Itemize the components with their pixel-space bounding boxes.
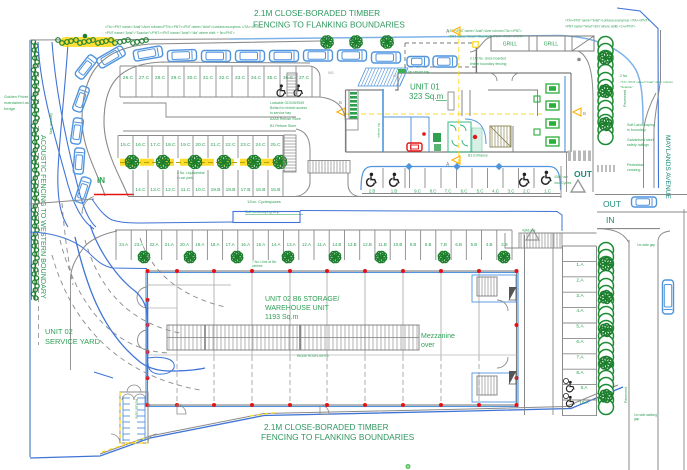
svg-text:20.A: 20.A [180,242,189,247]
svg-text:4no. Cycles: 4no. Cycles [554,181,572,185]
svg-text:20.C: 20.C [195,142,206,148]
svg-text:B1 Entrance: B1 Entrance [468,154,488,158]
svg-text:<TA><PNT name="Arial">Lontana: <TA><PNT name="Arial">Lontana euonymus <… [565,19,650,23]
svg-text:W1: W1 [328,70,335,75]
svg-text:26.C: 26.C [123,75,134,81]
svg-text:15.B: 15.B [271,187,281,193]
svg-text:2.1M CLOSE-BORADED TIMBER: 2.1M CLOSE-BORADED TIMBER [264,423,389,432]
svg-text:timber boundary fencing: timber boundary fencing [470,62,506,66]
svg-text:18.A: 18.A [210,242,219,247]
svg-text:6.A: 6.A [576,339,584,345]
svg-text:14.C: 14.C [135,187,146,193]
svg-text:13.B: 13.B [348,242,357,247]
svg-text:centres: centres [252,264,263,268]
svg-text:Mezzanine: Mezzanine [421,333,455,340]
svg-text:Pedestrian: Pedestrian [627,163,644,167]
svg-text:13.A: 13.A [287,242,296,247]
svg-text:11.C: 11.C [181,187,191,193]
svg-text:28.C: 28.C [155,75,166,81]
svg-text:18.C: 18.C [165,142,176,148]
svg-text:30.C: 30.C [187,75,198,81]
svg-text:Pavement: Pavement [623,89,627,107]
svg-text:W2: W2 [393,74,399,78]
svg-text:4.C: 4.C [492,189,499,194]
svg-text:34.C: 34.C [251,75,262,81]
svg-text:12.B: 12.B [363,242,372,247]
svg-text:1.C: 1.C [544,189,551,194]
svg-text:<PNT name="Arial">"Scanlon"</P: <PNT name="Arial">"Scanlon"</PNT><PNT na… [105,31,235,35]
svg-text:fire escape: fire escape [377,123,381,138]
svg-text:14.B: 14.B [332,242,341,247]
svg-text:<PNT name="Arial">30n' where w: <PNT name="Arial">30n' where width <1n</… [565,25,636,29]
svg-text:14.A: 14.A [271,242,280,247]
svg-text:6.C: 6.C [461,189,468,194]
svg-text:10.A: 10.A [579,400,588,405]
svg-text:IN: IN [97,176,105,185]
svg-text:43A5 use: 43A5 use [522,229,536,233]
svg-text:5.C: 5.C [477,189,484,194]
svg-text:12.C: 12.C [165,187,176,193]
svg-text:17.A: 17.A [226,242,235,247]
svg-text:hedge: hedge [4,106,16,111]
svg-text:9.A: 9.A [581,385,588,390]
svg-text:UNIT 02 B6 STORAGE/: UNIT 02 B6 STORAGE/ [265,296,339,303]
svg-text:22.C: 22.C [225,142,236,148]
svg-text:2.B: 2.B [369,189,376,194]
svg-text:1193 Sq.m: 1193 Sq.m [265,314,299,321]
svg-text:UNIT 01: UNIT 01 [410,83,440,92]
svg-text:11.B: 11.B [378,242,387,247]
svg-text:"Scanlon": "Scanlon" [620,85,633,89]
svg-text:12.A: 12.A [302,242,311,247]
svg-text:3.C: 3.C [508,189,515,194]
svg-text:1.B: 1.B [391,189,398,194]
svg-text:16.A: 16.A [241,242,250,247]
svg-text:2.C: 2.C [523,189,530,194]
svg-text:MAYLANDS AVENUE: MAYLANDS AVENUE [664,135,671,199]
svg-text:8.B: 8.B [425,242,432,247]
svg-text:Refuse store: Refuse store [135,399,139,419]
svg-text:over: over [421,342,435,349]
svg-text:4.A: 4.A [576,308,584,314]
svg-text:8 No. Liquidambar: 8 No. Liquidambar [177,171,206,175]
svg-text:IN: IN [606,215,615,225]
svg-text:SERVICE YARD: SERVICE YARD [45,337,101,346]
svg-text:8.A: 8.A [576,370,584,376]
svg-text:A3A5 Refuse Store: A3A5 Refuse Store [270,117,301,121]
svg-text:19.A: 19.A [195,242,204,247]
svg-text:B: B [583,111,586,116]
svg-text:OUT: OUT [603,199,621,209]
svg-text:Galvanised steel: Galvanised steel [627,138,654,142]
svg-text:21.C: 21.C [210,142,221,148]
svg-text:9.B: 9.B [410,242,417,247]
svg-text:33.C: 33.C [235,75,246,81]
svg-text:crossing: crossing [627,168,640,172]
svg-text:safety railings: safety railings [627,143,649,147]
svg-text:19.C: 19.C [180,142,191,148]
svg-text:19.B: 19.B [211,187,221,193]
svg-text:2.1M CLOSE-BORADED TIMBER: 2.1M CLOSE-BORADED TIMBER [254,8,380,18]
svg-text:in car park: in car park [177,176,193,180]
svg-text:Soft Landscaping: Soft Landscaping [627,123,655,127]
svg-text:11.A: 11.A [317,242,326,247]
svg-text:Lockable GDS49/4949: Lockable GDS49/4949 [270,101,304,105]
svg-text:GRILL: GRILL [503,42,518,48]
svg-text:5.A: 5.A [576,324,584,330]
svg-text:to service bay: to service bay [270,111,291,115]
svg-text:GRILL: GRILL [544,42,559,48]
svg-text:FENCING TO FLANKING BOUNDARIES: FENCING TO FLANKING BOUNDARIES [261,432,415,442]
svg-text:25.C: 25.C [270,142,281,148]
svg-text:7.A: 7.A [576,354,584,360]
svg-text:35.C: 35.C [267,75,278,81]
svg-text:2.A: 2.A [576,277,584,283]
svg-text:22.A: 22.A [150,242,159,247]
svg-text:ACOUSTIC FENCING TO WESTERN BO: ACOUSTIC FENCING TO WESTERN BOUNDARY [39,135,48,299]
svg-text:16.C: 16.C [135,142,146,148]
svg-text:in boundary: in boundary [627,128,646,132]
svg-text:21.A: 21.A [165,242,174,247]
svg-text:17.B: 17.B [241,187,251,193]
svg-text:<TA><PNT name="Arial">Acer rub: <TA><PNT name="Arial">Acer rubrum<PTN><P… [105,25,262,29]
svg-text:Bollard to restrict access: Bollard to restrict access [270,106,307,110]
svg-text:Service Bay: Service Bay [49,113,54,134]
svg-text:OUT: OUT [574,169,593,179]
svg-text:UNIT 02: UNIT 02 [45,327,73,336]
svg-text:29.C: 29.C [171,75,182,81]
svg-text:15.A: 15.A [256,242,265,247]
svg-text:10.C: 10.C [195,187,206,193]
svg-text:12no. Cyclespaces: 12no. Cyclespaces [247,199,281,204]
svg-text:27.C: 27.C [139,75,150,81]
svg-text:13.C: 13.C [150,187,161,193]
svg-text:5.B: 5.B [471,242,478,247]
svg-text:16.B: 16.B [256,187,266,193]
svg-text:B1 Refuse Store: B1 Refuse Store [270,124,296,128]
svg-text:1.A: 1.A [576,262,584,268]
svg-text:15.C: 15.C [120,142,131,148]
svg-text:B: B [339,100,342,105]
svg-text:3.A: 3.A [576,293,584,299]
svg-text:<TA><PNT name="Arial">Acer rub: <TA><PNT name="Arial">Acer rubrum [620,80,673,84]
svg-text:3.B: 3.B [501,242,508,247]
svg-text:4.B: 4.B [486,242,493,247]
svg-text:FENCING TO FLANKING BOUNDARIES: FENCING TO FLANKING BOUNDARIES [253,20,405,30]
svg-text:23.C: 23.C [240,142,251,148]
svg-text:2.1M No. close boarded: 2.1M No. close boarded [470,57,506,61]
svg-text:2 No.: 2 No. [620,74,628,78]
svg-text:31.C: 31.C [203,75,214,81]
svg-text:23.A: 23.A [134,242,143,247]
svg-text:18.B: 18.B [226,187,236,193]
svg-text:7.C: 7.C [445,189,452,194]
svg-text:1m wide gap: 1m wide gap [637,243,655,247]
svg-text:37.C: 37.C [299,75,310,81]
svg-text:RIDGE ROOFLIGHTS: RIDGE ROOFLIGHTS [297,354,329,358]
svg-text:7.B: 7.B [440,242,447,247]
svg-text:Pavement: Pavement [624,387,628,403]
svg-text:6.B: 6.B [455,242,462,247]
svg-text:8.C: 8.C [430,189,437,194]
svg-text:323 Sq.m: 323 Sq.m [409,92,444,101]
svg-text:24.A: 24.A [119,242,128,247]
svg-text:32.C: 32.C [219,75,230,81]
svg-text:17.C: 17.C [150,142,161,148]
svg-text:bin service bay: bin service bay [408,70,430,74]
svg-text:9.C: 9.C [414,189,421,194]
svg-text:10.B: 10.B [393,242,402,247]
svg-text:Golden Privet: Golden Privet [4,94,29,99]
svg-text:maintained as: maintained as [4,100,29,105]
svg-text:WAREHOUSE UNIT: WAREHOUSE UNIT [265,305,330,312]
svg-text:24.C: 24.C [255,142,266,148]
svg-text:gap: gap [634,417,640,421]
